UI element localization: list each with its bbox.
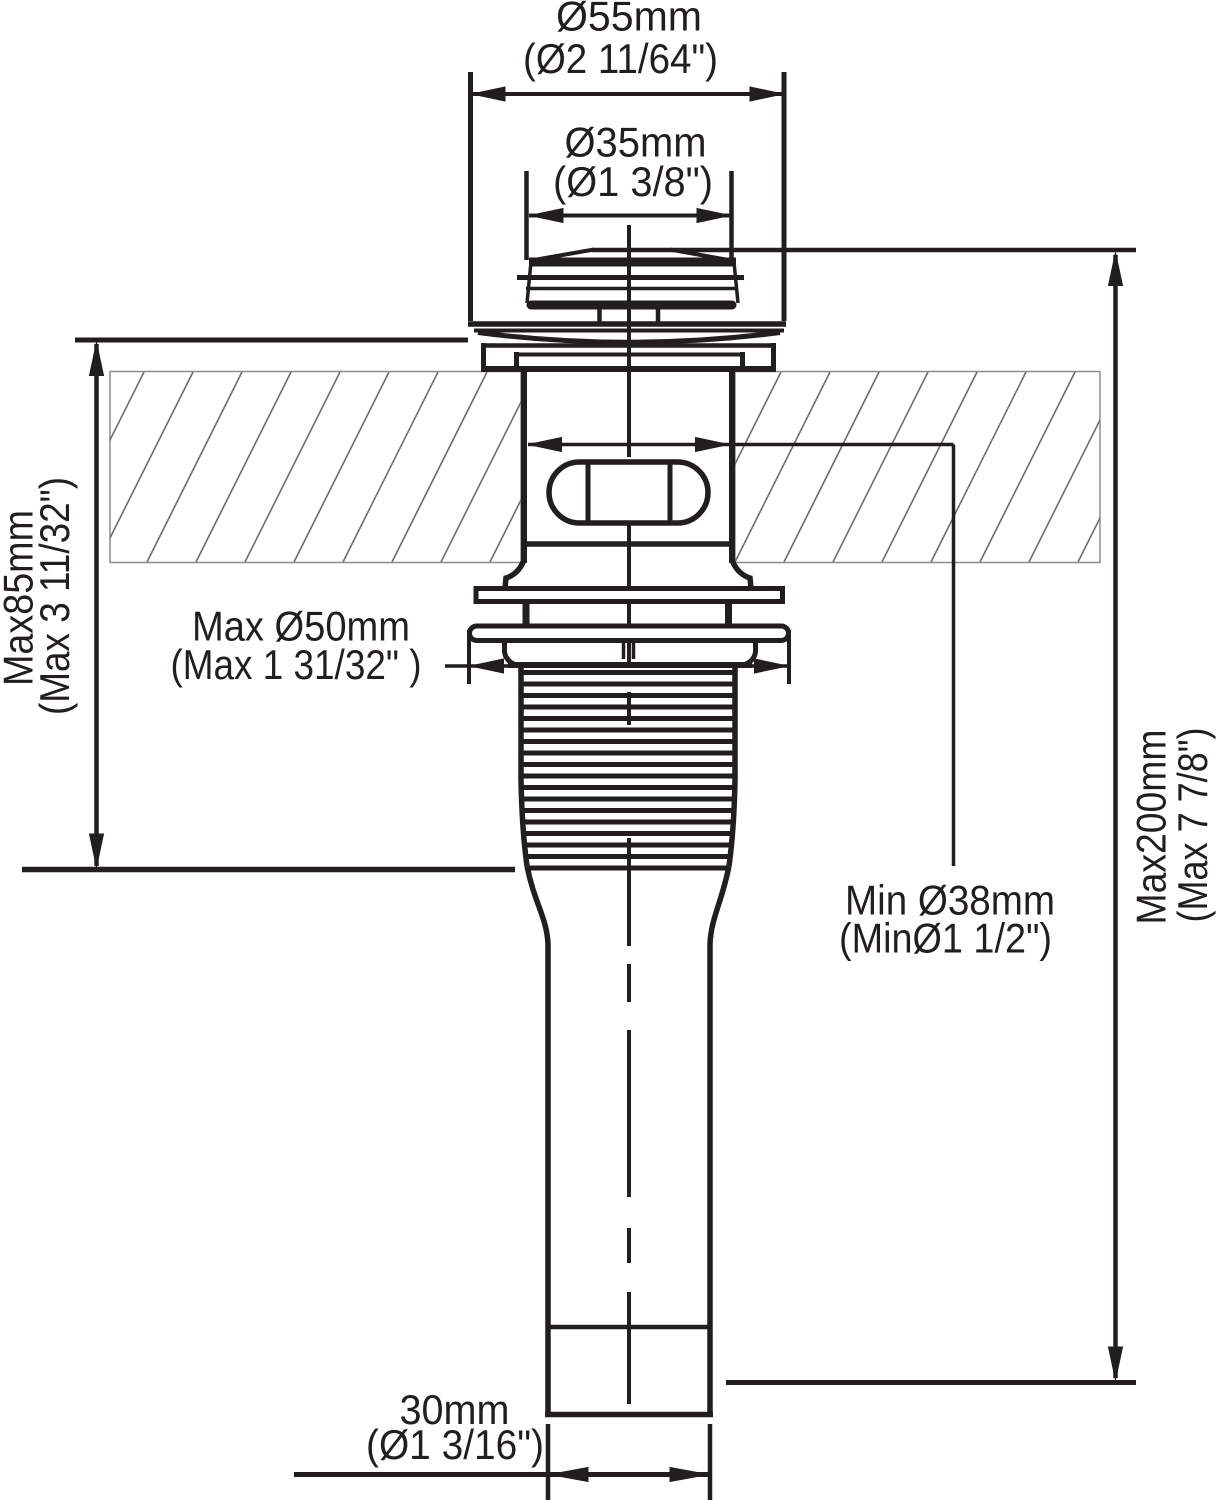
svg-text:(Max 3 11/32"): (Max 3 11/32")	[31, 477, 78, 715]
svg-text:(Ø2 11/64"): (Ø2 11/64")	[523, 35, 718, 82]
svg-text:Max200mm: Max200mm	[1128, 730, 1175, 925]
svg-text:(Ø1 3/16"): (Ø1 3/16")	[366, 1421, 544, 1468]
svg-text:(MinØ1 1/2"): (MinØ1 1/2")	[839, 915, 1052, 962]
svg-text:(Max 7 7/8"): (Max 7 7/8")	[1169, 728, 1216, 923]
svg-text:(Max 1 31/32" ): (Max 1 31/32" )	[171, 641, 422, 688]
svg-text:Ø55mm: Ø55mm	[556, 0, 702, 40]
svg-text:(Ø1 3/8"): (Ø1 3/8")	[553, 158, 713, 205]
